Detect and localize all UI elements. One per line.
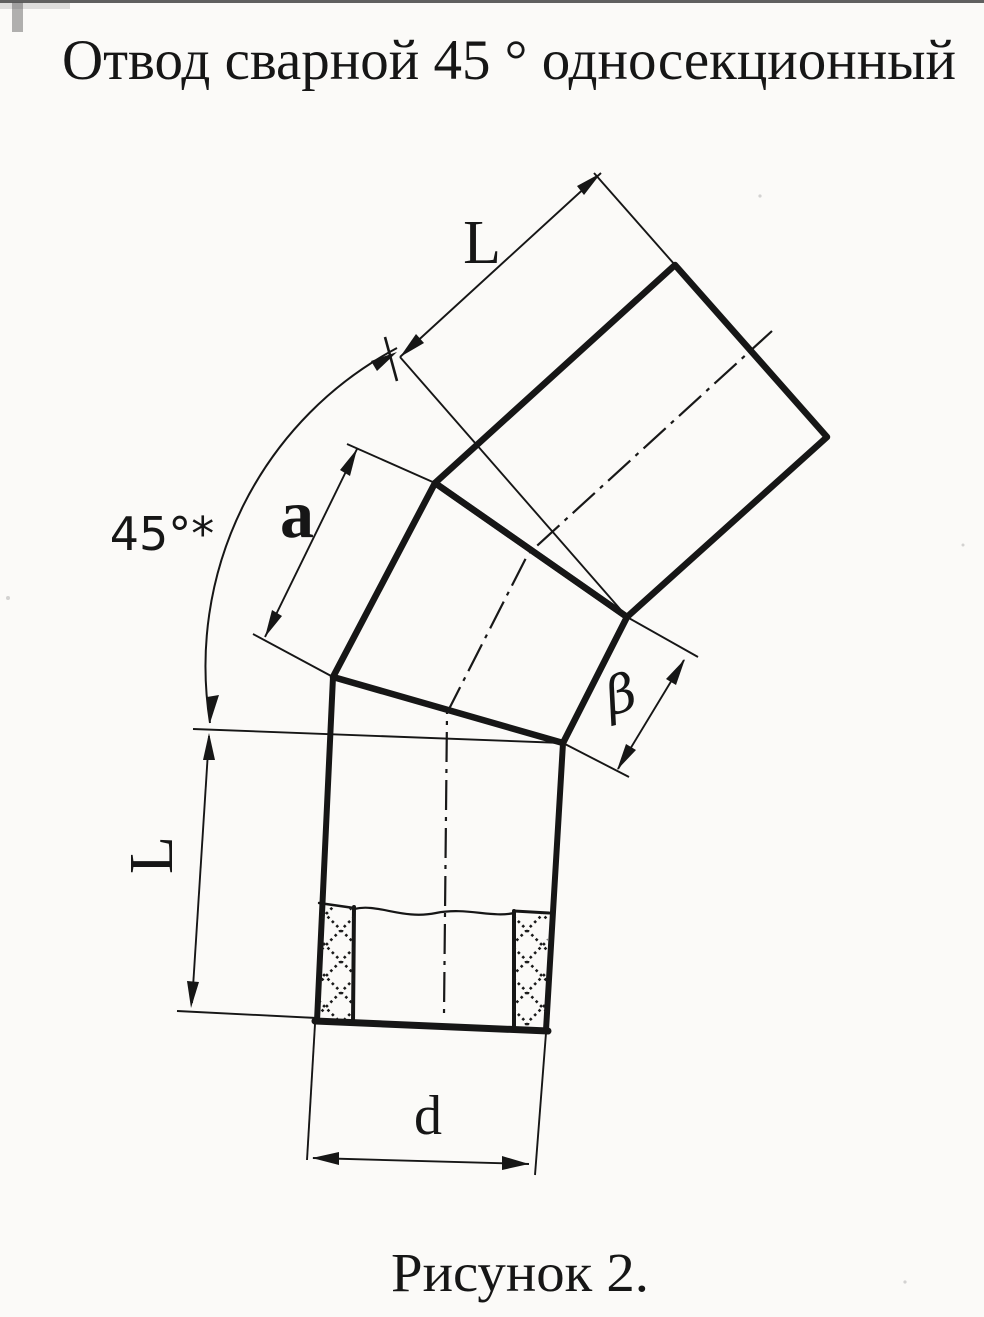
arrow-a-bottom: [265, 610, 282, 637]
elbow-technical-drawing: Отвод сварной 45 ° односекционный: [0, 0, 984, 1317]
arrow-a-top: [340, 449, 357, 476]
ext-line-lowerL-top: [193, 729, 563, 743]
scanned-drawing-page: Отвод сварной 45 ° односекционный: [0, 0, 984, 1317]
lower-pipe-right-wall: [546, 743, 563, 1030]
dim-line-lower-L: [192, 736, 209, 1003]
drawing-title: Отвод сварной 45 ° односекционный: [62, 29, 956, 92]
label-d: d: [414, 1085, 442, 1147]
label-bend-angle: 45°*: [110, 507, 215, 561]
arrow-lowerL-top: [203, 733, 215, 760]
ext-line-lowerL-bottom: [177, 1011, 317, 1018]
dimension-lower-L: [177, 729, 563, 1018]
ext-line-d-left: [307, 1024, 315, 1160]
arrow-beta-top: [666, 659, 685, 685]
paper-specks: [6, 194, 965, 1283]
label-a: a: [280, 476, 314, 552]
right-wall-band-top: [514, 911, 549, 913]
hatch-right-wall-section: [514, 913, 548, 1027]
ext-line-a-bottom: [253, 634, 333, 677]
ext-line-a-top: [347, 444, 435, 483]
label-beta: β: [597, 662, 643, 728]
ext-line-end-face: [594, 173, 675, 265]
scan-edge-artifact: [0, 0, 984, 32]
arrow-beta-bottom: [617, 744, 636, 770]
ext-line-beta-top: [627, 617, 698, 657]
ext-line-beta-bottom: [563, 743, 629, 777]
dim-line-d: [313, 1158, 529, 1164]
middle-section-outline: [333, 483, 627, 743]
figure-caption: Рисунок 2.: [391, 1242, 649, 1303]
arrow-d-right: [502, 1156, 529, 1170]
arrow-lowerL-bottom: [187, 981, 199, 1008]
ext-line-d-right: [535, 1033, 546, 1175]
arrow-d-left: [312, 1152, 339, 1165]
label-lower-L: L: [118, 836, 186, 874]
label-upper-L: L: [463, 209, 501, 277]
hatch-left-wall-section: [319, 906, 354, 1020]
bore-break-line: [354, 908, 514, 915]
upper-pipe-outline: [435, 265, 827, 617]
